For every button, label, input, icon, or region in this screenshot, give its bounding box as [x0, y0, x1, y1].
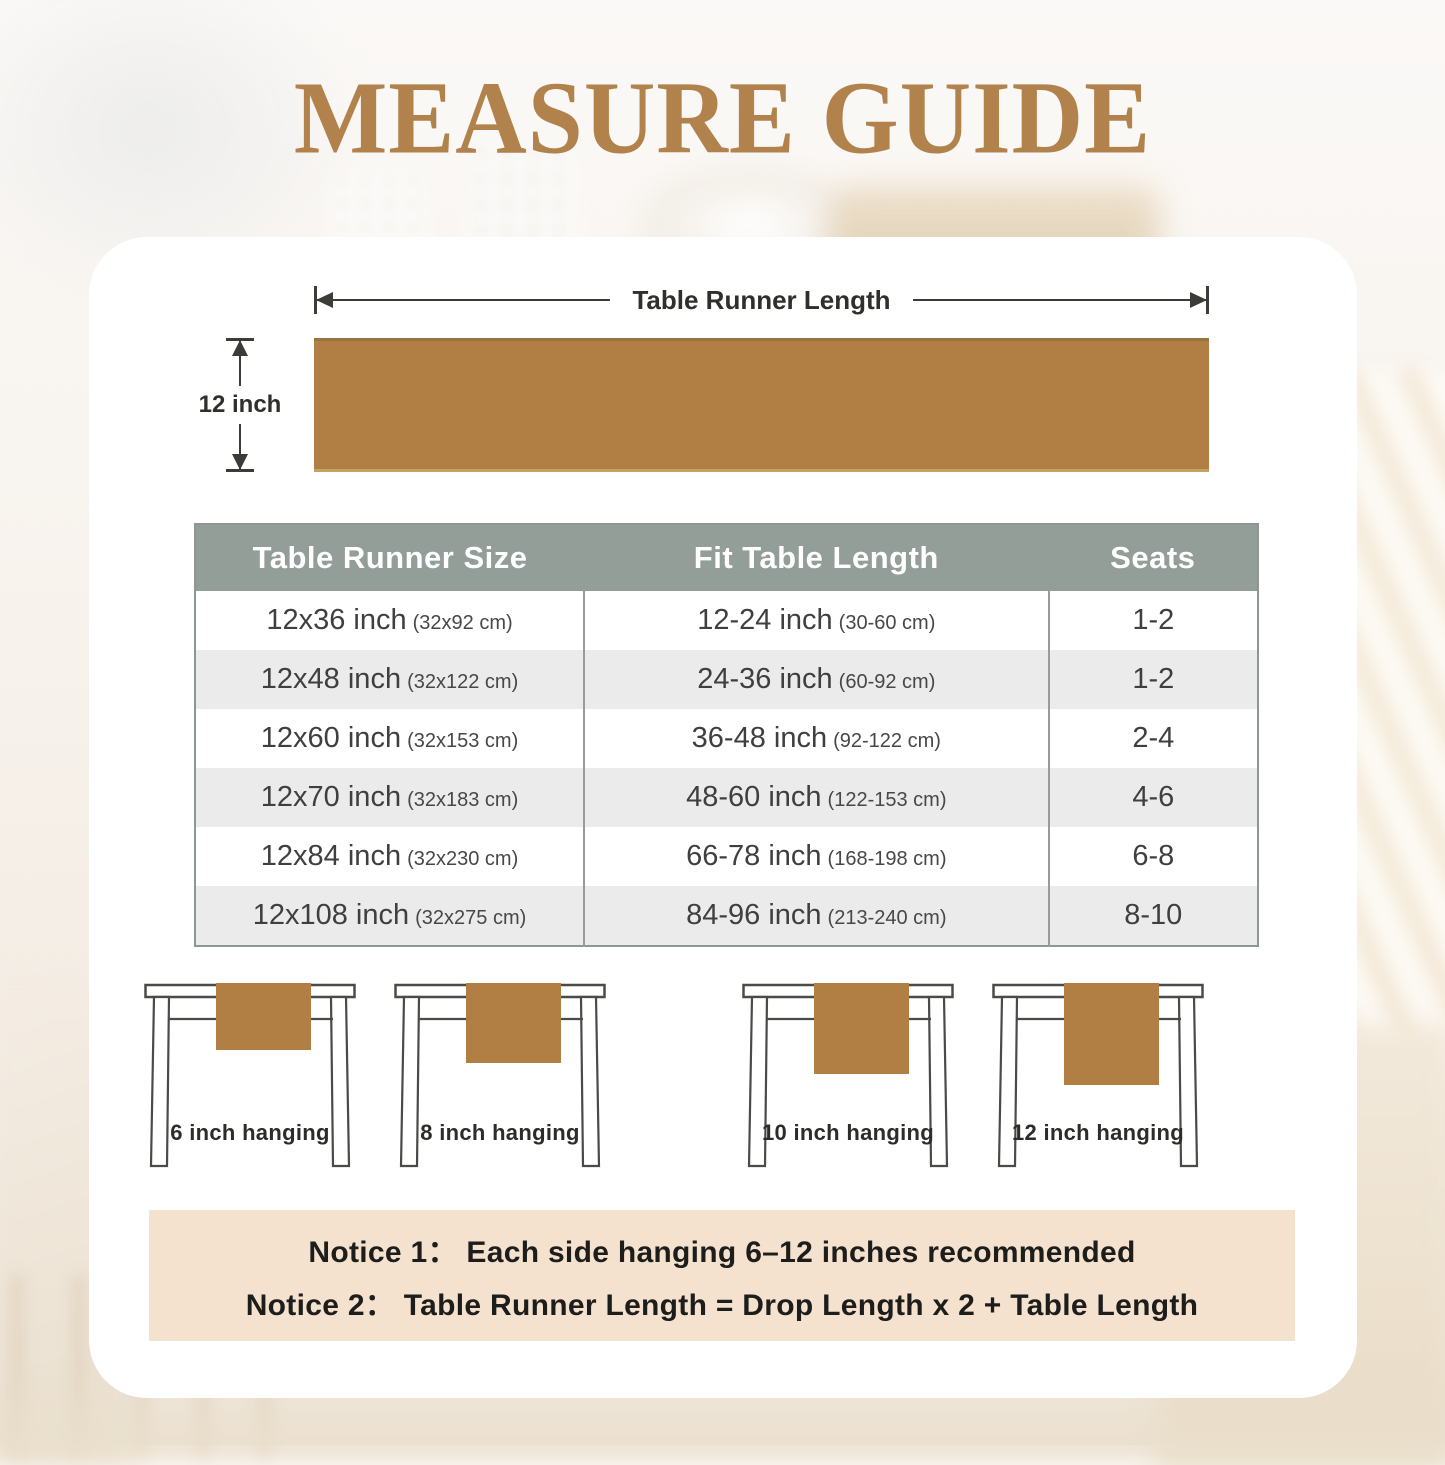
cell-seats: 4-6	[1049, 768, 1258, 827]
hanging-label: 12 inch hanging	[992, 1120, 1204, 1146]
fit-value: 24-36 inch	[697, 663, 832, 695]
cell-size: 12x48 inch(32x122 cm)	[195, 650, 584, 709]
fit-value: 66-78 inch	[686, 840, 821, 872]
table-row: 12x84 inch(32x230 cm) 66-78 inch(168-198…	[195, 827, 1258, 886]
header-fit-length: Fit Table Length	[584, 524, 1049, 591]
hanging-label: 6 inch hanging	[144, 1120, 356, 1146]
cell-fit: 84-96 inch(213-240 cm)	[584, 886, 1049, 946]
fit-value: 48-60 inch	[686, 781, 821, 813]
size-value: 12x36 inch	[266, 604, 406, 636]
cell-seats: 6-8	[1049, 827, 1258, 886]
table-row: 12x70 inch(32x183 cm) 48-60 inch(122-153…	[195, 768, 1258, 827]
fit-cm: (30-60 cm)	[839, 612, 936, 634]
hanging-figure-6inch: 6 inch hanging	[144, 980, 356, 1180]
page-title: MEASURE GUIDE	[0, 59, 1445, 178]
size-value: 12x48 inch	[261, 663, 401, 695]
arrow-line-right	[913, 299, 1206, 302]
length-label: Table Runner Length	[610, 285, 912, 316]
notice-line-2: Notice 2： Table Runner Length = Drop Len…	[246, 1280, 1199, 1324]
table-row: 12x36 inch(32x92 cm) 12-24 inch(30-60 cm…	[195, 591, 1258, 650]
cell-size: 12x36 inch(32x92 cm)	[195, 591, 584, 650]
fit-cm: (60-92 cm)	[839, 671, 936, 693]
fit-cm: (92-122 cm)	[833, 730, 941, 752]
size-cm: (32x153 cm)	[407, 730, 518, 752]
cell-fit: 12-24 inch(30-60 cm)	[584, 591, 1049, 650]
cell-fit: 24-36 inch(60-92 cm)	[584, 650, 1049, 709]
header-seats: Seats	[1049, 524, 1258, 591]
table-row: 12x108 inch(32x275 cm) 84-96 inch(213-24…	[195, 886, 1258, 946]
size-cm: (32x183 cm)	[407, 789, 518, 811]
arrow-line-down	[239, 424, 242, 469]
cell-seats: 8-10	[1049, 886, 1258, 946]
size-value: 12x70 inch	[261, 781, 401, 813]
fit-cm: (122-153 cm)	[828, 789, 947, 811]
cell-size: 12x84 inch(32x230 cm)	[195, 827, 584, 886]
fit-value: 36-48 inch	[692, 722, 827, 754]
size-table-header-row: Table Runner Size Fit Table Length Seats	[195, 524, 1258, 591]
cell-seats: 1-2	[1049, 591, 1258, 650]
size-cm: (32x92 cm)	[413, 612, 513, 634]
cell-size: 12x108 inch(32x275 cm)	[195, 886, 584, 946]
fit-cm: (168-198 cm)	[828, 848, 947, 870]
table-runner-swatch	[314, 338, 1209, 472]
measure-guide-card: Table Runner Length 12 inch Table Runner…	[89, 237, 1357, 1398]
hanging-figure-8inch: 8 inch hanging	[394, 980, 606, 1180]
size-cm: (32x275 cm)	[415, 907, 526, 929]
fit-cm: (213-240 cm)	[828, 907, 947, 929]
cell-size: 12x70 inch(32x183 cm)	[195, 768, 584, 827]
cell-fit: 48-60 inch(122-153 cm)	[584, 768, 1049, 827]
width-dimension-arrow: 12 inch	[194, 338, 286, 472]
cell-seats: 2-4	[1049, 709, 1258, 768]
notice-line-1: Notice 1： Each side hanging 6–12 inches …	[308, 1227, 1135, 1271]
size-table: Table Runner Size Fit Table Length Seats…	[194, 523, 1259, 947]
arrow-line-up	[239, 341, 242, 386]
arrow-line-left	[317, 299, 610, 302]
cell-seats: 1-2	[1049, 650, 1258, 709]
fit-value: 84-96 inch	[686, 899, 821, 931]
length-dimension-arrow: Table Runner Length	[314, 285, 1209, 315]
header-runner-size: Table Runner Size	[195, 524, 584, 591]
width-label: 12 inch	[199, 386, 282, 424]
notice-box: Notice 1： Each side hanging 6–12 inches …	[149, 1210, 1295, 1341]
size-cm: (32x230 cm)	[407, 848, 518, 870]
table-row: 12x48 inch(32x122 cm) 24-36 inch(60-92 c…	[195, 650, 1258, 709]
table-row: 12x60 inch(32x153 cm) 36-48 inch(92-122 …	[195, 709, 1258, 768]
size-value: 12x108 inch	[253, 899, 409, 931]
cell-size: 12x60 inch(32x153 cm)	[195, 709, 584, 768]
hanging-label: 8 inch hanging	[394, 1120, 606, 1146]
fit-value: 12-24 inch	[697, 604, 832, 636]
hanging-figure-12inch: 12 inch hanging	[992, 980, 1204, 1180]
hanging-label: 10 inch hanging	[742, 1120, 954, 1146]
cell-fit: 66-78 inch(168-198 cm)	[584, 827, 1049, 886]
size-value: 12x84 inch	[261, 840, 401, 872]
size-cm: (32x122 cm)	[407, 671, 518, 693]
cell-fit: 36-48 inch(92-122 cm)	[584, 709, 1049, 768]
hanging-figure-10inch: 10 inch hanging	[742, 980, 954, 1180]
size-value: 12x60 inch	[261, 722, 401, 754]
